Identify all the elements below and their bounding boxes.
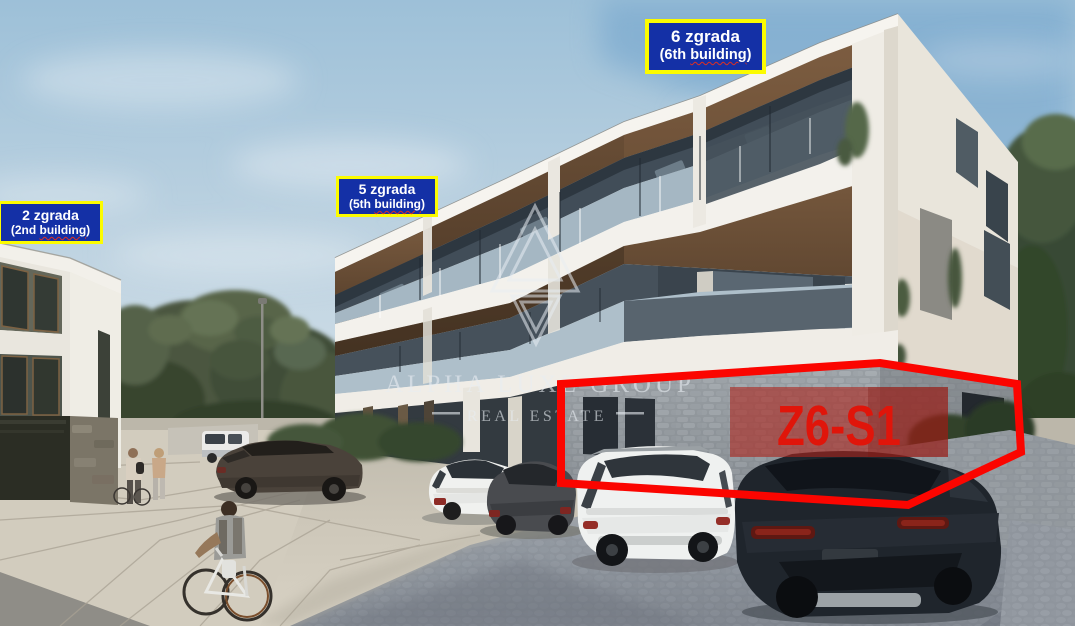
svg-text:Z6-S1: Z6-S1 bbox=[777, 394, 901, 458]
svg-text:REAL ESTATE: REAL ESTATE bbox=[467, 408, 607, 425]
